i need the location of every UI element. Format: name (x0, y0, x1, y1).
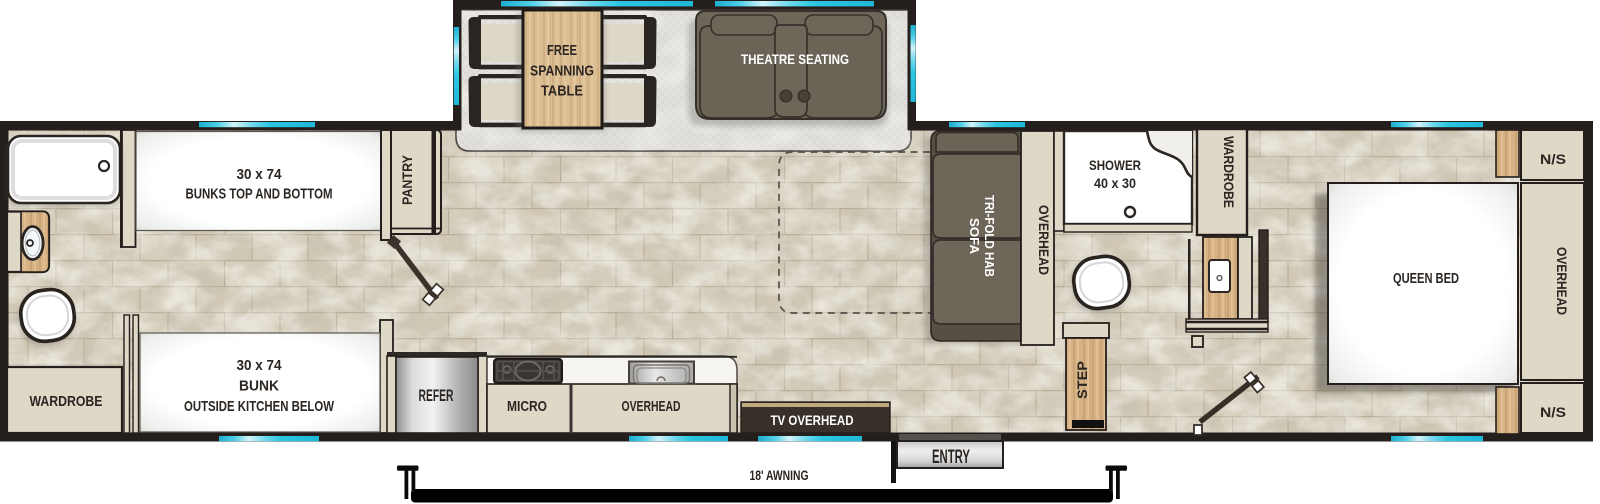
svg-text:SPANNING: SPANNING (530, 63, 594, 80)
svg-text:THEATRE SEATING: THEATRE SEATING (741, 51, 849, 67)
svg-text:18' AWNING: 18' AWNING (750, 468, 809, 483)
svg-text:TRI-FOLD HAB: TRI-FOLD HAB (982, 195, 997, 277)
svg-text:OUTSIDE KITCHEN BELOW: OUTSIDE KITCHEN BELOW (184, 398, 335, 415)
svg-text:40 x 30: 40 x 30 (1094, 175, 1136, 191)
svg-text:TABLE: TABLE (541, 83, 583, 100)
svg-text:OVERHEAD: OVERHEAD (1554, 247, 1569, 315)
svg-text:OVERHEAD: OVERHEAD (1036, 205, 1051, 275)
svg-text:30 x 74: 30 x 74 (237, 166, 283, 183)
svg-text:REFER: REFER (419, 386, 454, 405)
svg-text:PANTRY: PANTRY (399, 154, 415, 205)
svg-text:N/S: N/S (1540, 405, 1566, 420)
svg-text:WARDROBE: WARDROBE (30, 393, 103, 410)
svg-text:N/S: N/S (1540, 152, 1566, 167)
svg-text:QUEEN BED: QUEEN BED (1393, 271, 1459, 287)
svg-text:FREE: FREE (547, 42, 577, 59)
svg-text:30 x 74: 30 x 74 (237, 357, 283, 374)
svg-text:BUNKS TOP AND BOTTOM: BUNKS TOP AND BOTTOM (186, 186, 333, 203)
svg-text:ENTRY: ENTRY (932, 447, 970, 468)
svg-text:SOFA: SOFA (967, 218, 982, 255)
svg-text:WARDROBE: WARDROBE (1221, 136, 1237, 208)
svg-text:MICRO: MICRO (507, 398, 547, 415)
svg-text:BUNK: BUNK (239, 378, 279, 395)
svg-text:SHOWER: SHOWER (1089, 157, 1141, 173)
svg-text:OVERHEAD: OVERHEAD (622, 398, 681, 415)
svg-text:TV OVERHEAD: TV OVERHEAD (771, 412, 854, 428)
svg-text:STEP: STEP (1075, 361, 1090, 399)
